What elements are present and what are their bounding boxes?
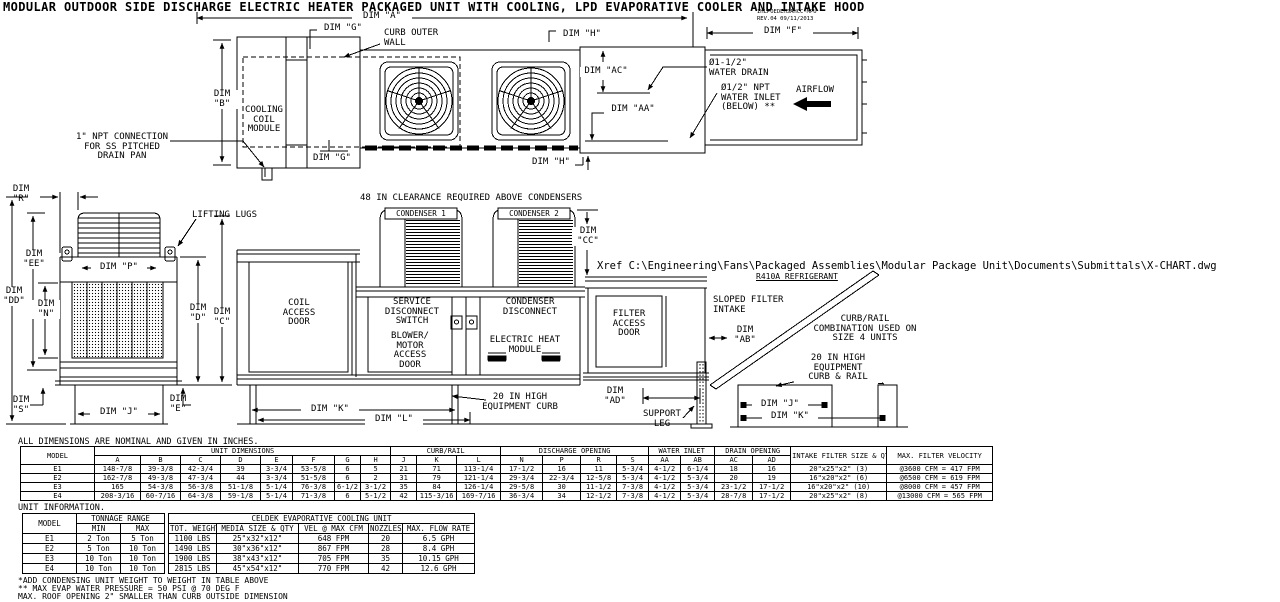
celdek-cell: 8.4 GPH [403,544,475,554]
celdek-cell: 1100 LBS [169,534,217,544]
tonnage-cell: 10 Ton [77,564,121,574]
celdek-cell: 6.5 GPH [403,534,475,544]
celdek-column-header: MEDIA SIZE & QTY [217,524,299,534]
dim-ac-label: DIM "AC" [580,67,632,77]
dim-ee-label: DIM "EE" [19,250,49,269]
dim-cell: 5 [361,465,391,474]
dim-cell: 5-3/4 [681,474,715,483]
service-disconnect-label: SERVICE DISCONNECT SWITCH [377,298,447,327]
celdek-cell: 25"x32"x12" [217,534,299,544]
dim-cell: 21 [391,465,417,474]
max-header: MAX [121,524,165,534]
table-row: 1490 LBS30"x36"x12"867 FPM288.4 GPH [169,544,475,554]
tonnage-cell: 10 Ton [121,544,165,554]
lifting-lugs-label: LIFTING LUGS [192,211,257,221]
dim-cell: 16"x20"x2" (6) [791,474,887,483]
dim-g-top-label: DIM "G" [319,24,367,34]
dim-cell: 22-3/4 [543,474,581,483]
dim-cell: 5-3/4 [681,483,715,492]
table-row: 1900 LBS38"x43"x12"705 FPM3510.15 GPH [169,554,475,564]
cad-drawing-sheet: MODULAR OUTDOOR SIDE DISCHARGE ELECTRIC … [0,0,1280,602]
dim-cell: 29-5/8 [501,483,543,492]
dim-cell: 16 [543,465,581,474]
dim-r-label: DIM "R" [6,185,36,204]
tonnage-cell: 2 Ton [77,534,121,544]
model-column-header: MODEL [23,514,77,534]
dim-cell: 31 [391,474,417,483]
curb-outer-wall-label: CURB OUTER WALL [384,29,438,48]
dim-column-header: AA [649,456,681,465]
airflow-arrow-icon [793,97,831,111]
dim-cell: 20"x25"x2" (3) [791,465,887,474]
table-row: E310 Ton10 Ton [23,554,165,564]
dim-cell: 17-1/2 [753,492,791,501]
dim-cell: 12-5/8 [581,474,617,483]
evaporative-media-hatch [73,283,162,357]
dim-cell: 165 [95,483,141,492]
dim-e-label: DIM "E" [163,395,193,414]
dim-j-detail-label: DIM "J" [752,400,808,410]
dim-cell: @8000 CFM = 457 FPM [887,483,993,492]
drain-opening-group-header: DRAIN OPENING [715,447,791,456]
equipment-curb-label: 20 IN HIGH EQUIPMENT CURB [466,393,574,412]
tonnage-cell: E3 [23,554,77,564]
celdek-cell: 648 FPM [299,534,369,544]
dim-column-header: C [181,456,221,465]
table-row: E1148-7/839-3/842-3/4393-3/453-5/8652171… [21,465,993,474]
dim-cell: 53-5/8 [293,465,335,474]
tonnage-cell: E4 [23,564,77,574]
water-inlet-label: Ø1/2" NPT WATER INLET (BELOW) ** [721,84,781,113]
dim-h-top-label: DIM "H" [558,30,606,40]
dim-l-label: DIM "L" [365,415,423,425]
unit-dimensions-group-header: UNIT DIMENSIONS [95,447,391,456]
celdek-table-body: 1100 LBS25"x32"x12"648 FPM206.5 GPH1490 … [169,534,475,574]
table-row: E2162-7/849-3/847-3/4443-3/451-5/8623179… [21,474,993,483]
water-drain-label: Ø1-1/2" WATER DRAIN [709,59,769,78]
curb-rail-group-header: CURB/RAIL [391,447,501,456]
dim-cell: 4-1/2 [649,483,681,492]
dim-cell: 42-3/4 [181,465,221,474]
dim-cc-label: DIM "CC" [572,227,604,246]
dim-cell: 3-3/4 [261,465,293,474]
dim-column-header: K [417,456,457,465]
celdek-column-header: NOZZLES [369,524,403,534]
condenser2-coil-hatch [519,220,573,285]
tonnage-cell: 10 Ton [121,564,165,574]
dim-ad-label: DIM "AD" [598,387,632,406]
dim-column-header: J [391,456,417,465]
dim-g-bottom-label: DIM "G" [308,154,356,164]
cooling-coil-module-label: COOLING COIL MODULE [242,106,286,135]
dim-cell: 3-1/2 [361,483,391,492]
support-leg-label: SUPPORT LEG [636,410,688,429]
dim-cell: 113-1/4 [457,465,501,474]
dim-cell: 6-1/4 [681,465,715,474]
intake-filter-header: INTAKE FILTER SIZE & QTY [791,447,887,465]
tonnage-cell: E2 [23,544,77,554]
celdek-cell: 42 [369,564,403,574]
dim-dd-label: DIM "DD" [0,287,28,306]
filter-access-door-label: FILTER ACCESS DOOR [598,310,660,339]
dim-cell: 5-3/4 [617,474,649,483]
footnote-3: MAX. ROOF OPENING 2" SMALLER THAN CURB O… [18,592,288,601]
water-inlet-group-header: WATER INLET [649,447,715,456]
dim-cell: 208-3/16 [95,492,141,501]
dim-cell: 7-3/8 [617,483,649,492]
dim-column-header: AC [715,456,753,465]
dim-cell: 16"x20"x2" (10) [791,483,887,492]
dim-cell: 30 [543,483,581,492]
celdek-cell: 12.6 GPH [403,564,475,574]
coil-access-door-label: COIL ACCESS DOOR [268,299,330,328]
dim-aa-label: DIM "AA" [607,105,659,115]
dim-cell: 51-1/8 [221,483,261,492]
tonnage-range-group-header: TONNAGE RANGE [77,514,165,524]
dim-s-label: DIM "S" [6,396,36,415]
model-column-header: MODEL [21,447,95,465]
dim-cell: 39 [221,465,261,474]
celdek-column-header: MAX. FLOW RATE [403,524,475,534]
dim-a-label: DIM "A" [352,12,412,22]
celdek-cell: 28 [369,544,403,554]
dim-cell: 4-1/2 [649,465,681,474]
condenser-fan-icon [492,62,570,140]
celdek-cell: 705 FPM [299,554,369,564]
celdek-cell: 30"x36"x12" [217,544,299,554]
drawing-title: MODULAR OUTDOOR SIDE DISCHARGE ELECTRIC … [3,0,865,14]
condenser1-coil-hatch [406,220,460,285]
dim-cell: E2 [21,474,95,483]
dim-cell: 20"x25"x2" (8) [791,492,887,501]
dim-n-label: DIM "N" [32,300,60,319]
dim-h-bottom-label: DIM "H" [527,158,575,168]
dim-f-label: DIM "F" [753,27,813,37]
dim-cell: 5-3/4 [617,465,649,474]
dim-cell: 12-1/2 [581,492,617,501]
dim-cell: 6-1/2 [335,483,361,492]
dim-cell: 71 [417,465,457,474]
unit-information-note: UNIT INFORMATION. [18,503,105,513]
dim-cell: 34 [543,492,581,501]
celdek-cell: 20 [369,534,403,544]
dim-cell: 115-3/16 [417,492,457,501]
dim-cell: 16 [753,465,791,474]
dim-ab-label: DIM "AB" [729,326,761,345]
dim-cell: @6500 CFM = 619 FPM [887,474,993,483]
dim-cell: 148-7/8 [95,465,141,474]
dim-cell: 44 [221,474,261,483]
dim-cell: E1 [21,465,95,474]
dim-cell: 42 [391,492,417,501]
dim-cell: 29-3/4 [501,474,543,483]
dim-column-header: A [95,456,141,465]
dim-k-detail-label: DIM "K" [762,412,818,422]
dim-column-header: P [543,456,581,465]
dim-column-header: S [617,456,649,465]
dim-column-header: N [501,456,543,465]
condenser2-label: CONDENSER 2 [498,209,570,219]
blower-motor-access-label: BLOWER/ MOTOR ACCESS DOOR [379,332,441,370]
table-row: 1100 LBS25"x32"x12"648 FPM206.5 GPH [169,534,475,544]
celdek-column-header: TOT. WEIGHT [169,524,217,534]
dim-cell: 60-7/16 [141,492,181,501]
curb-rail-combo-label: CURB/RAIL COMBINATION USED ON SIZE 4 UNI… [798,315,932,344]
tonnage-cell: 10 Ton [77,554,121,564]
celdek-table: CELDEK EVAPORATIVE COOLING UNIT TOT. WEI… [168,513,475,574]
tonnage-cell: 10 Ton [121,554,165,564]
celdek-cell: 45"x54"x12" [217,564,299,574]
discharge-opening-group-header: DISCHARGE OPENING [501,447,649,456]
dim-cell: 17-1/2 [501,465,543,474]
tonnage-table-body: E12 Ton5 TonE25 Ton10 TonE310 Ton10 TonE… [23,534,165,574]
curb-rail-20-label: 20 IN HIGH EQUIPMENT CURB & RAIL [794,354,882,383]
dim-column-header: AD [753,456,791,465]
dim-cell: 6 [335,474,361,483]
condenser1-label: CONDENSER 1 [385,209,457,219]
dim-cell: 169-7/16 [457,492,501,501]
dim-cell: 28-7/8 [715,492,753,501]
celdek-cell: 1900 LBS [169,554,217,564]
dim-cell: 47-3/4 [181,474,221,483]
refrigerant-label: R410A REFRIGERANT [756,272,838,281]
dim-k-center-label: DIM "K" [301,405,359,415]
dim-cell: 18 [715,465,753,474]
dim-column-header: H [361,456,391,465]
airflow-label: AIRFLOW [790,86,840,96]
dim-cell: 19 [753,474,791,483]
dim-cell: 162-7/8 [95,474,141,483]
dim-cell: 5-1/4 [261,483,293,492]
dim-cell: 51-5/8 [293,474,335,483]
dim-cell: 6 [335,465,361,474]
dim-cell: 36-3/4 [501,492,543,501]
dim-p-label: DIM "P" [91,263,147,273]
dim-cell: 59-1/8 [221,492,261,501]
dim-cell: 5-3/4 [681,492,715,501]
dim-column-header: R [581,456,617,465]
dim-column-header: E [261,456,293,465]
dim-cell: 6 [335,492,361,501]
dim-cell: 121-1/4 [457,474,501,483]
dim-cell: 3-3/4 [261,474,293,483]
dim-column-header: AB [681,456,715,465]
dimensions-table: MODEL UNIT DIMENSIONS CURB/RAIL DISCHARG… [20,446,993,501]
dim-cell: 17-1/2 [753,483,791,492]
dim-column-header: F [293,456,335,465]
dim-cell: 35 [391,483,417,492]
dim-b-label: DIM "B" [206,90,238,109]
table-row: E25 Ton10 Ton [23,544,165,554]
dim-column-header: L [457,456,501,465]
condenser-disconnect-label: CONDENSER DISCONNECT [494,298,566,317]
tonnage-table: MODEL TONNAGE RANGE MIN MAX E12 Ton5 Ton… [22,513,165,574]
celdek-cell: 770 FPM [299,564,369,574]
dim-cell: 7-3/8 [617,492,649,501]
dim-cell: 5-1/2 [361,492,391,501]
tonnage-cell: 5 Ton [77,544,121,554]
dim-cell: @13000 CFM = 565 FPM [887,492,993,501]
revision-date: REV.04 09/11/2013 [757,16,813,22]
dim-column-header: G [335,456,361,465]
celdek-cell: 1490 LBS [169,544,217,554]
dim-cell: 54-3/8 [141,483,181,492]
dim-cell: 2 [361,474,391,483]
dim-cell: 84 [417,483,457,492]
celdek-column-header: VEL @ MAX CFM [299,524,369,534]
dim-cell: 20 [715,474,753,483]
dim-c-label: DIM "C" [208,308,236,327]
dim-cell: 4-1/2 [649,492,681,501]
dimensions-table-body: E1148-7/839-3/842-3/4393-3/453-5/8652171… [21,465,993,501]
xref-path-label: Xref C:\Engineering\Fans\Packaged Assemb… [597,260,1217,272]
table-row: 2815 LBS45"x54"x12"770 FPM4212.6 GPH [169,564,475,574]
npt-connection-label: 1" NPT CONNECTION FOR SS PITCHED DRAIN P… [58,133,186,162]
celdek-header-row: TOT. WEIGHTMEDIA SIZE & QTYVEL @ MAX CFM… [169,524,475,534]
dim-cell: E3 [21,483,95,492]
dim-cell: E4 [21,492,95,501]
dim-column-header: B [141,456,181,465]
tonnage-cell: 5 Ton [121,534,165,544]
dim-cell: 79 [417,474,457,483]
dim-cell: 126-1/4 [457,483,501,492]
table-row: E4208-3/1660-7/1664-3/859-1/85-1/471-3/8… [21,492,993,501]
dim-cell: 4-1/2 [649,474,681,483]
dim-cell: 76-3/8 [293,483,335,492]
condenser-fan-icon [380,62,458,140]
clearance-note-label: 48 IN CLEARANCE REQUIRED ABOVE CONDENSER… [360,194,582,204]
celdek-cell: 35 [369,554,403,564]
celdek-cell: 38"x43"x12" [217,554,299,564]
max-filter-velocity-header: MAX. FILTER VELOCITY [887,447,993,465]
dim-cell: 23-1/2 [715,483,753,492]
electric-heat-module-label: ELECTRIC HEAT MODULE [477,336,573,355]
celdek-cell: 10.15 GPH [403,554,475,564]
table-row: E410 Ton10 Ton [23,564,165,574]
dim-cell: 5-1/4 [261,492,293,501]
table-row: E12 Ton5 Ton [23,534,165,544]
dim-cell: @3600 CFM = 417 FPM [887,465,993,474]
dim-cell: 11 [581,465,617,474]
tonnage-cell: E1 [23,534,77,544]
celdek-cell: 2815 LBS [169,564,217,574]
dim-column-header: D [221,456,261,465]
table-row: E316554-3/856-3/851-1/85-1/476-3/86-1/23… [21,483,993,492]
dim-cell: 71-3/8 [293,492,335,501]
dim-cell: 39-3/8 [141,465,181,474]
celdek-group-header: CELDEK EVAPORATIVE COOLING UNIT [169,514,475,524]
dim-cell: 11-1/2 [581,483,617,492]
dim-j-left-label: DIM "J" [90,408,148,418]
min-header: MIN [77,524,121,534]
dim-cell: 64-3/8 [181,492,221,501]
dim-cell: 56-3/8 [181,483,221,492]
dim-cell: 49-3/8 [141,474,181,483]
celdek-cell: 867 FPM [299,544,369,554]
revision-code: IHLPOEDEHSAHCC-MPU [757,9,817,15]
sloped-filter-intake-label: SLOPED FILTER INTAKE [713,296,783,315]
